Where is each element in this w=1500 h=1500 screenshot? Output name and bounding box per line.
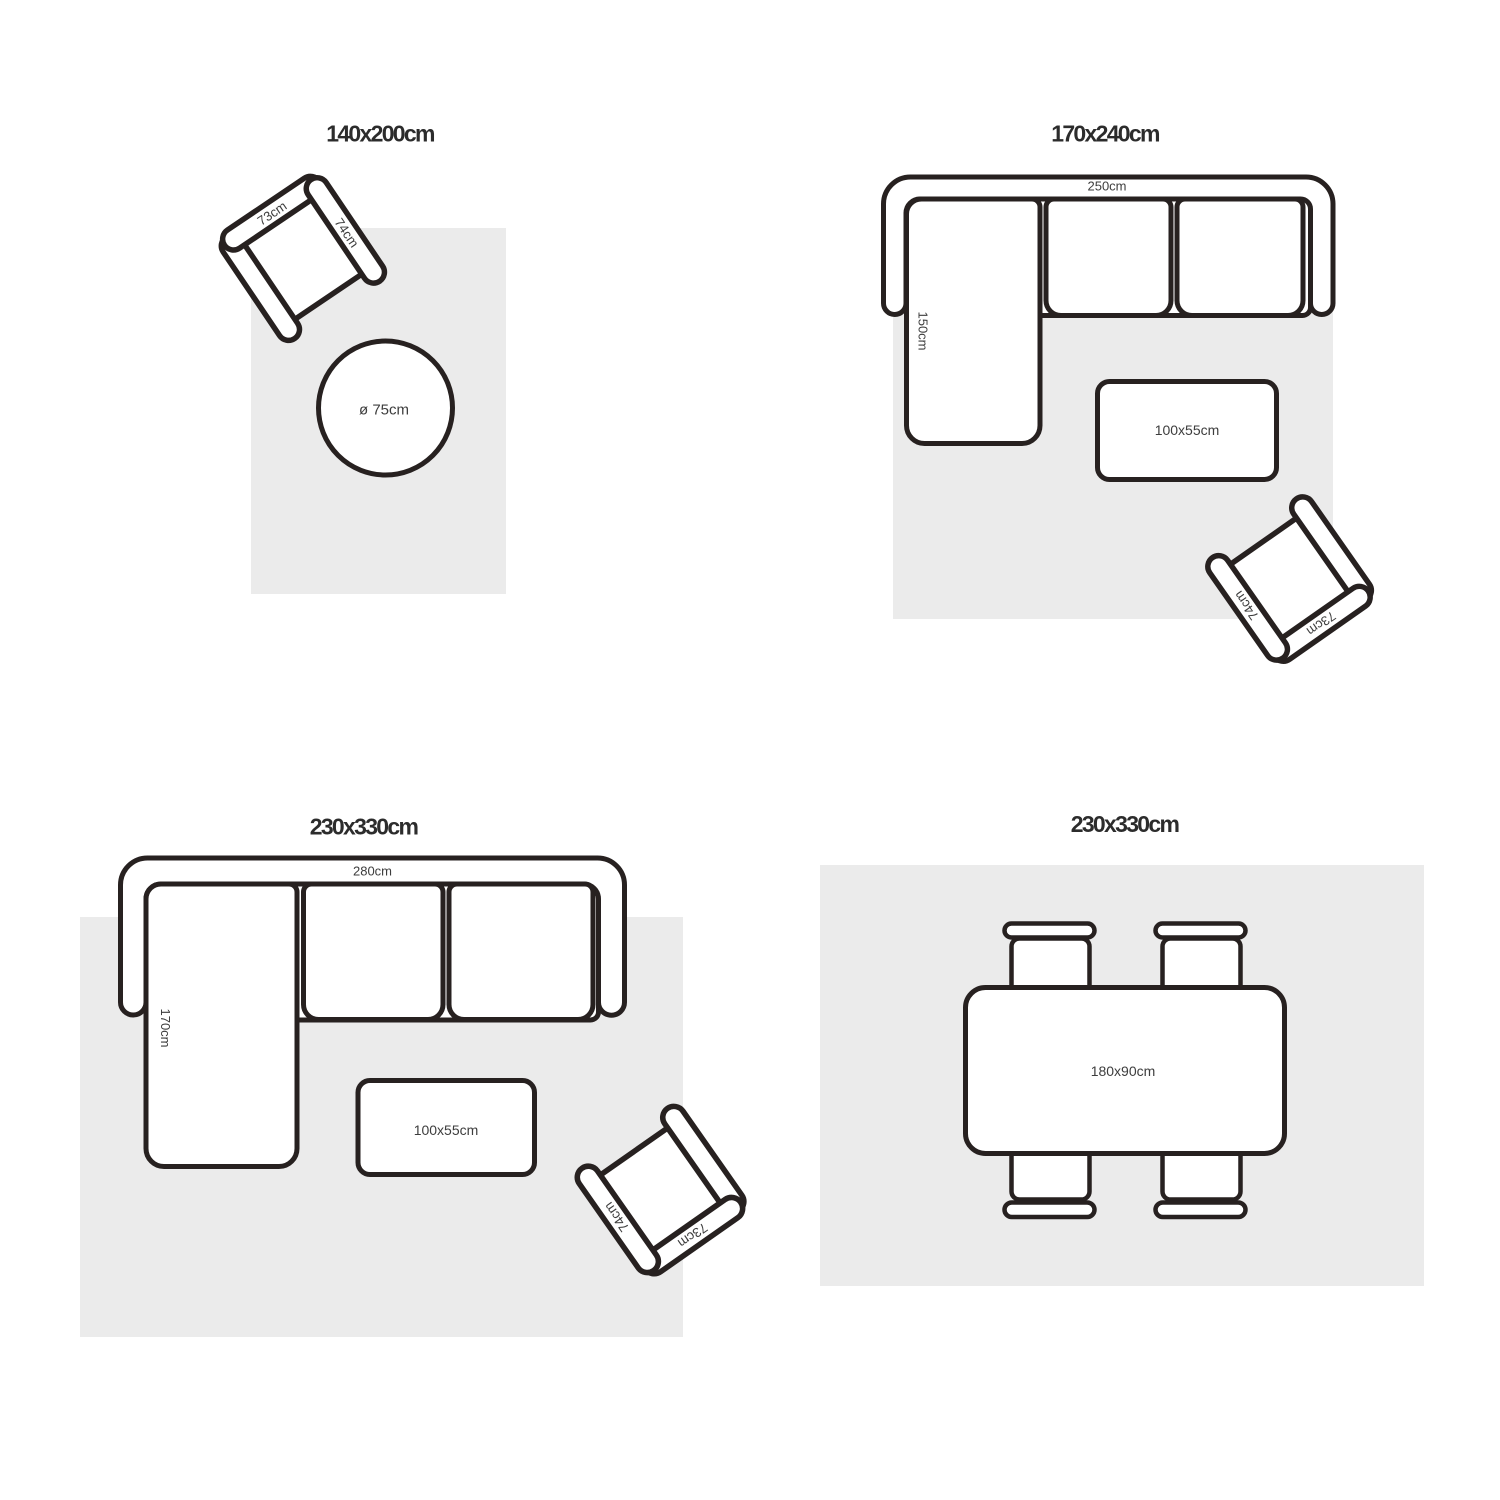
svg-text:170x240cm: 170x240cm <box>1051 121 1160 147</box>
svg-text:100x55cm: 100x55cm <box>414 1122 479 1138</box>
svg-text:140x200cm: 140x200cm <box>326 121 435 147</box>
svg-text:170cm: 170cm <box>158 1008 173 1047</box>
svg-text:100x55cm: 100x55cm <box>1155 422 1220 438</box>
svg-text:230x330cm: 230x330cm <box>1071 811 1180 837</box>
svg-text:150cm: 150cm <box>915 311 930 350</box>
svg-text:230x330cm: 230x330cm <box>310 814 419 840</box>
svg-text:250cm: 250cm <box>1087 179 1126 194</box>
svg-text:180x90cm: 180x90cm <box>1091 1063 1156 1079</box>
svg-text:ø 75cm: ø 75cm <box>359 401 409 418</box>
svg-text:280cm: 280cm <box>353 864 392 879</box>
